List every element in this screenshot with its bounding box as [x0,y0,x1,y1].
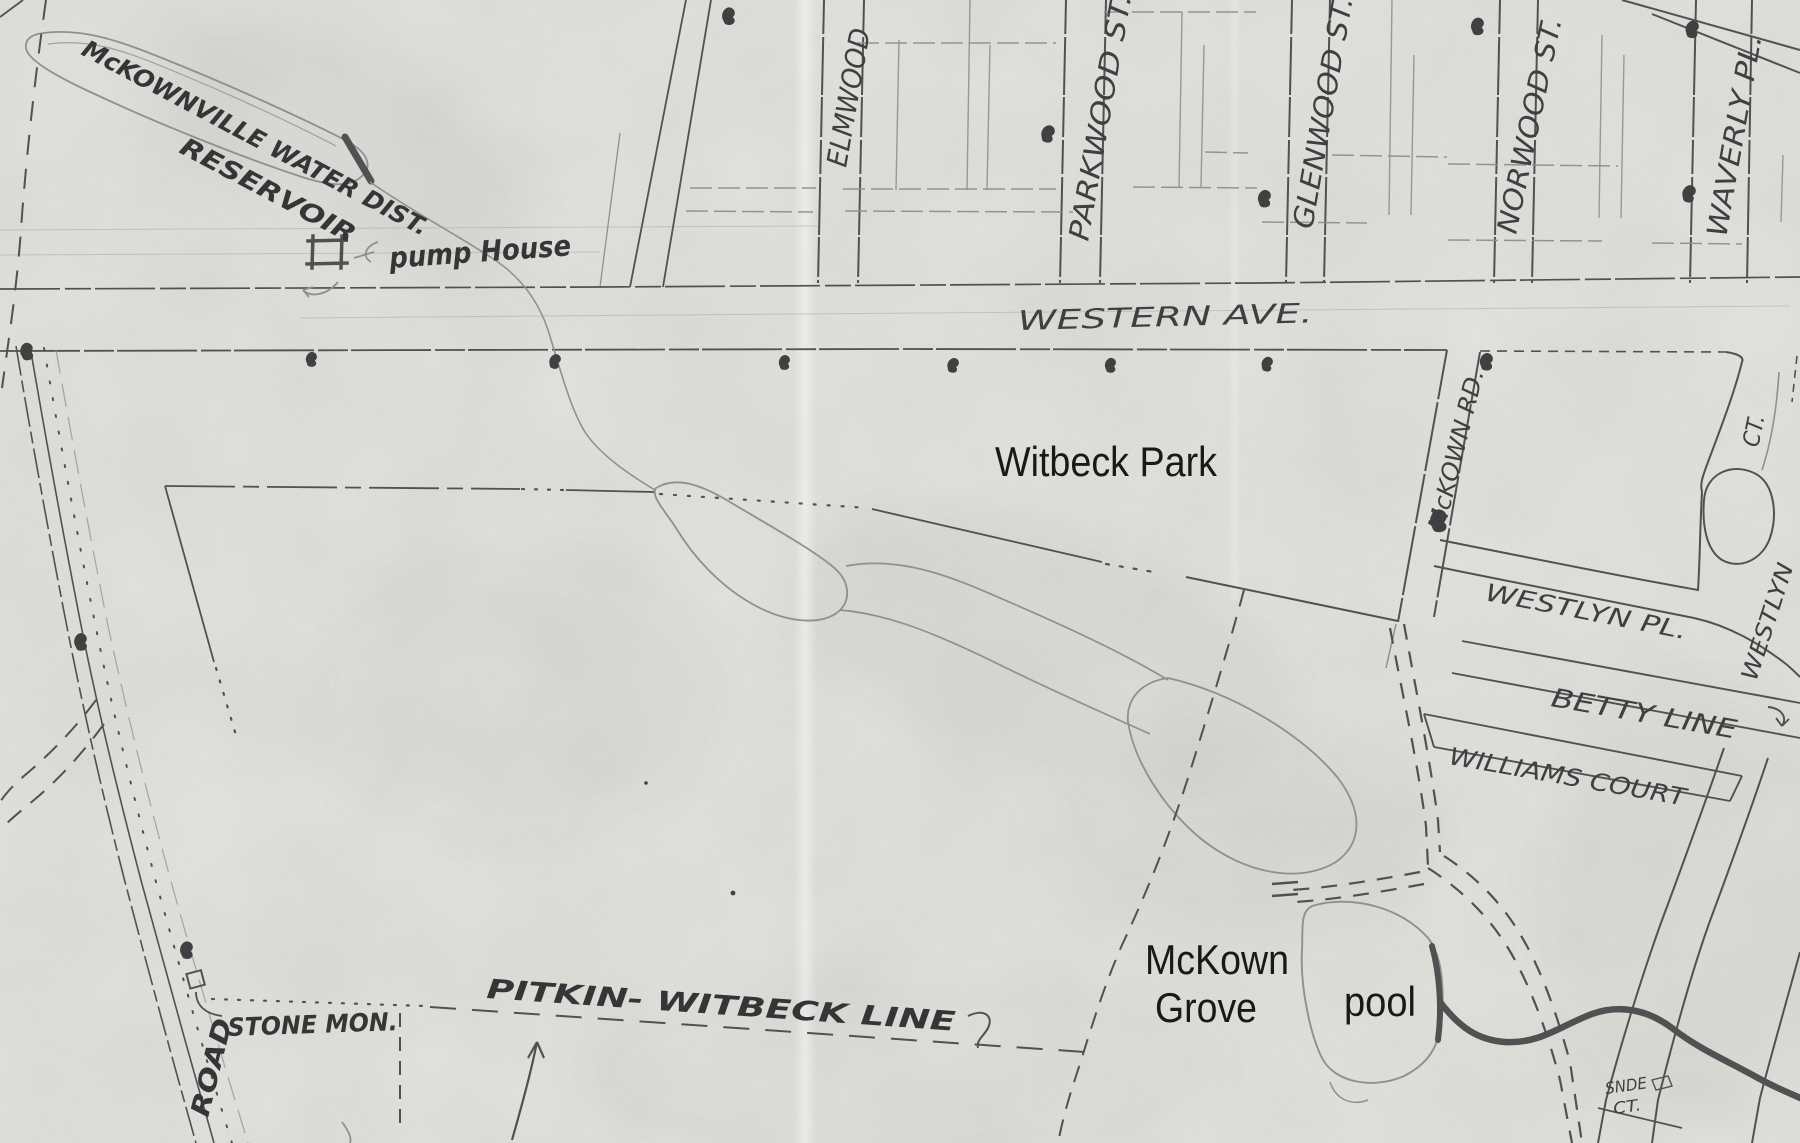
snde-ct-label-line2: CT. [1612,1095,1642,1118]
pool-label: pool [1344,978,1416,1025]
western-ave-south-dotted [1480,351,1726,352]
mckown-grove-label-line2: Grove [1155,984,1257,1031]
scanned-map: McKOWNVILLE WATER DIST. RESERVOIR pump H… [0,0,1800,1143]
map-canvas: McKOWNVILLE WATER DIST. RESERVOIR pump H… [0,0,1800,1143]
stone-mon-label: STONE MON. [227,1007,398,1042]
mckown-grove-label-line1: McKown [1145,936,1289,983]
paper-fold-streak [793,0,817,1143]
witbeck-park-label: Witbeck Park [995,438,1218,485]
